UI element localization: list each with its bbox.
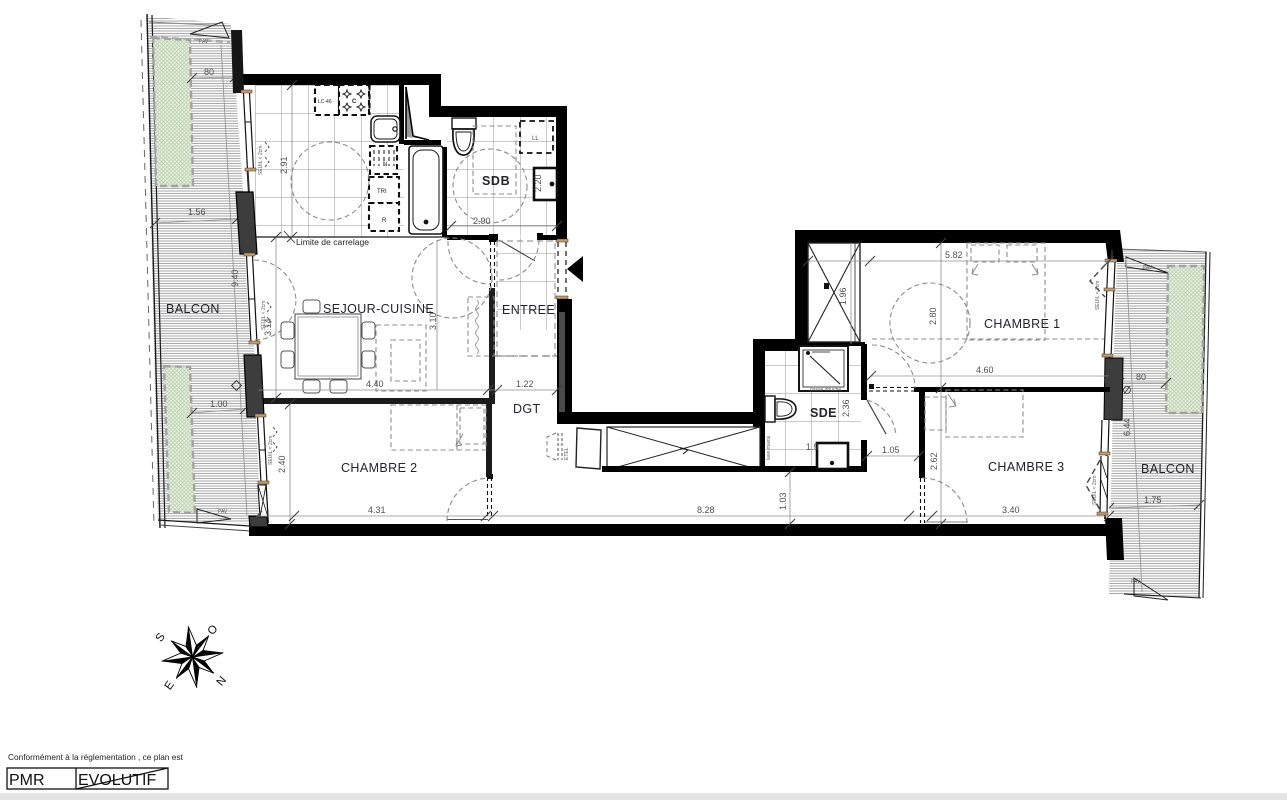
svg-text:LC-46: LC-46 bbox=[318, 99, 332, 105]
svg-text:ENTREE: ENTREE bbox=[502, 303, 555, 317]
svg-text:6.44: 6.44 bbox=[1122, 418, 1132, 436]
svg-text:2.40: 2.40 bbox=[277, 455, 287, 473]
svg-text:passe douche: passe douche bbox=[810, 387, 841, 393]
svg-text:BALCON: BALCON bbox=[1141, 462, 1195, 476]
svg-text:80: 80 bbox=[1136, 372, 1146, 382]
svg-text:CHAMBRE 1: CHAMBRE 1 bbox=[984, 317, 1061, 331]
svg-text:1.03: 1.03 bbox=[778, 492, 788, 510]
svg-text:CHAMBRE 3: CHAMBRE 3 bbox=[988, 460, 1065, 474]
svg-text:TRI: TRI bbox=[377, 189, 387, 195]
svg-text:3.40: 3.40 bbox=[1002, 505, 1020, 515]
svg-text:1.05: 1.05 bbox=[882, 445, 900, 455]
svg-text:1.56: 1.56 bbox=[188, 207, 206, 217]
svg-text:2.62: 2.62 bbox=[929, 452, 939, 470]
svg-text:8.28: 8.28 bbox=[697, 505, 715, 515]
svg-text:1.9: 1.9 bbox=[806, 442, 819, 452]
svg-text:lave-mains: lave-mains bbox=[766, 435, 772, 460]
svg-text:5.82: 5.82 bbox=[945, 250, 963, 260]
svg-text:PMR: PMR bbox=[9, 772, 45, 789]
svg-text:3.10: 3.10 bbox=[428, 312, 438, 330]
svg-text:4.60: 4.60 bbox=[976, 365, 994, 375]
svg-text:1.00: 1.00 bbox=[210, 399, 228, 409]
svg-text:SEUIL < 2cm: SEUIL < 2cm bbox=[1092, 476, 1098, 505]
svg-text:3.14: 3.14 bbox=[263, 318, 273, 336]
svg-text:ETEL: ETEL bbox=[564, 447, 570, 460]
svg-text:CHAMBRE 2: CHAMBRE 2 bbox=[341, 461, 418, 475]
svg-text:2.91: 2.91 bbox=[279, 156, 289, 174]
svg-text:1.96: 1.96 bbox=[838, 287, 848, 305]
svg-text:C: C bbox=[352, 99, 357, 105]
svg-text:PAV: PAV bbox=[218, 509, 228, 515]
svg-text:4.31: 4.31 bbox=[368, 505, 386, 515]
svg-text:80: 80 bbox=[204, 67, 214, 77]
svg-text:SEUIL < 2cm: SEUIL < 2cm bbox=[1095, 281, 1101, 310]
svg-text:SEUIL < 2cm: SEUIL < 2cm bbox=[268, 436, 274, 465]
svg-text:LL: LL bbox=[532, 136, 539, 142]
svg-text:2.20: 2.20 bbox=[533, 174, 543, 192]
svg-text:SEUIL < 2cm: SEUIL < 2cm bbox=[258, 146, 264, 175]
svg-text:PAV: PAV bbox=[199, 39, 209, 45]
svg-text:Limite de carrelage: Limite de carrelage bbox=[296, 237, 369, 247]
svg-text:R: R bbox=[382, 218, 387, 224]
svg-text:1.22: 1.22 bbox=[516, 379, 534, 389]
svg-text:1.75: 1.75 bbox=[1144, 495, 1162, 505]
svg-text:N: N bbox=[383, 162, 387, 168]
svg-text:SDB: SDB bbox=[482, 174, 510, 188]
svg-text:4.40: 4.40 bbox=[366, 379, 384, 389]
svg-text:2.90: 2.90 bbox=[473, 216, 491, 226]
svg-text:Conformément à la réglementati: Conformément à la réglementation , ce pl… bbox=[8, 752, 183, 762]
svg-text:9.40: 9.40 bbox=[230, 269, 240, 287]
svg-text:2.80: 2.80 bbox=[928, 307, 938, 325]
svg-text:2.36: 2.36 bbox=[841, 399, 851, 417]
svg-text:DGT: DGT bbox=[513, 402, 541, 416]
svg-text:BALCON: BALCON bbox=[166, 302, 220, 316]
svg-text:SDE: SDE bbox=[810, 406, 837, 420]
